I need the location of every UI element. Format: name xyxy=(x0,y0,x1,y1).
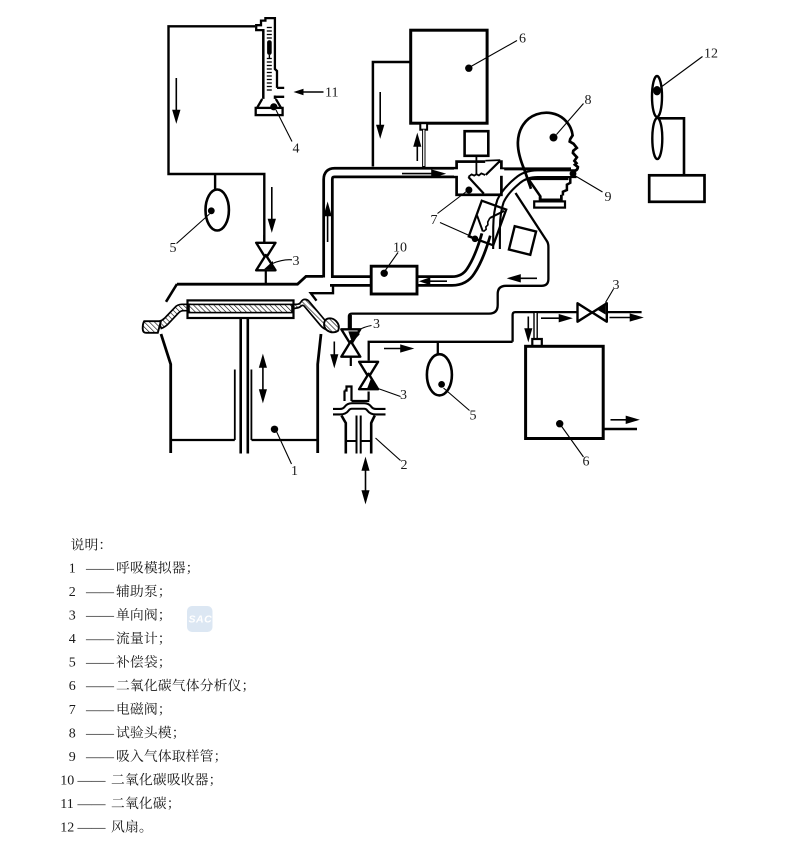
svg-text:——: —— xyxy=(77,773,107,788)
svg-text:——: —— xyxy=(85,656,115,671)
svg-text:6: 6 xyxy=(583,455,590,470)
svg-text:3: 3 xyxy=(373,317,380,332)
svg-text:1: 1 xyxy=(291,464,298,479)
svg-text:3: 3 xyxy=(613,278,620,293)
svg-text:——: —— xyxy=(85,750,115,765)
svg-text:——: —— xyxy=(77,797,107,812)
svg-text:7: 7 xyxy=(431,213,438,228)
svg-text:3: 3 xyxy=(293,254,300,269)
svg-text:4: 4 xyxy=(293,142,300,157)
svg-text:9: 9 xyxy=(69,750,76,765)
svg-text:——: —— xyxy=(85,609,115,624)
svg-text:4: 4 xyxy=(69,632,76,647)
svg-text:6: 6 xyxy=(519,32,526,47)
svg-text:2: 2 xyxy=(401,458,408,473)
svg-text:——: —— xyxy=(85,632,115,647)
svg-text:3: 3 xyxy=(69,609,76,624)
svg-text:——: —— xyxy=(77,821,107,836)
svg-text:1: 1 xyxy=(69,562,76,577)
svg-text:12: 12 xyxy=(704,47,718,62)
svg-text:2: 2 xyxy=(69,585,76,600)
svg-text:5: 5 xyxy=(170,241,177,256)
svg-text:9: 9 xyxy=(605,190,612,205)
svg-text:10: 10 xyxy=(60,773,74,788)
svg-text:——: —— xyxy=(85,679,115,694)
svg-text:10: 10 xyxy=(393,241,407,256)
svg-text:——: —— xyxy=(85,703,115,718)
svg-text:8: 8 xyxy=(69,726,76,741)
svg-text:3: 3 xyxy=(400,388,407,403)
svg-text:11: 11 xyxy=(60,797,73,812)
svg-text:——: —— xyxy=(85,585,115,600)
svg-text:——: —— xyxy=(85,726,115,741)
svg-text:SAC: SAC xyxy=(189,614,213,626)
svg-text:12: 12 xyxy=(60,821,74,836)
svg-text:6: 6 xyxy=(69,679,76,694)
svg-text:8: 8 xyxy=(585,93,592,108)
svg-text:——: —— xyxy=(85,562,115,577)
svg-text:5: 5 xyxy=(470,409,477,424)
svg-text:11: 11 xyxy=(325,86,338,101)
svg-text:5: 5 xyxy=(69,656,76,671)
svg-text:7: 7 xyxy=(69,703,76,718)
